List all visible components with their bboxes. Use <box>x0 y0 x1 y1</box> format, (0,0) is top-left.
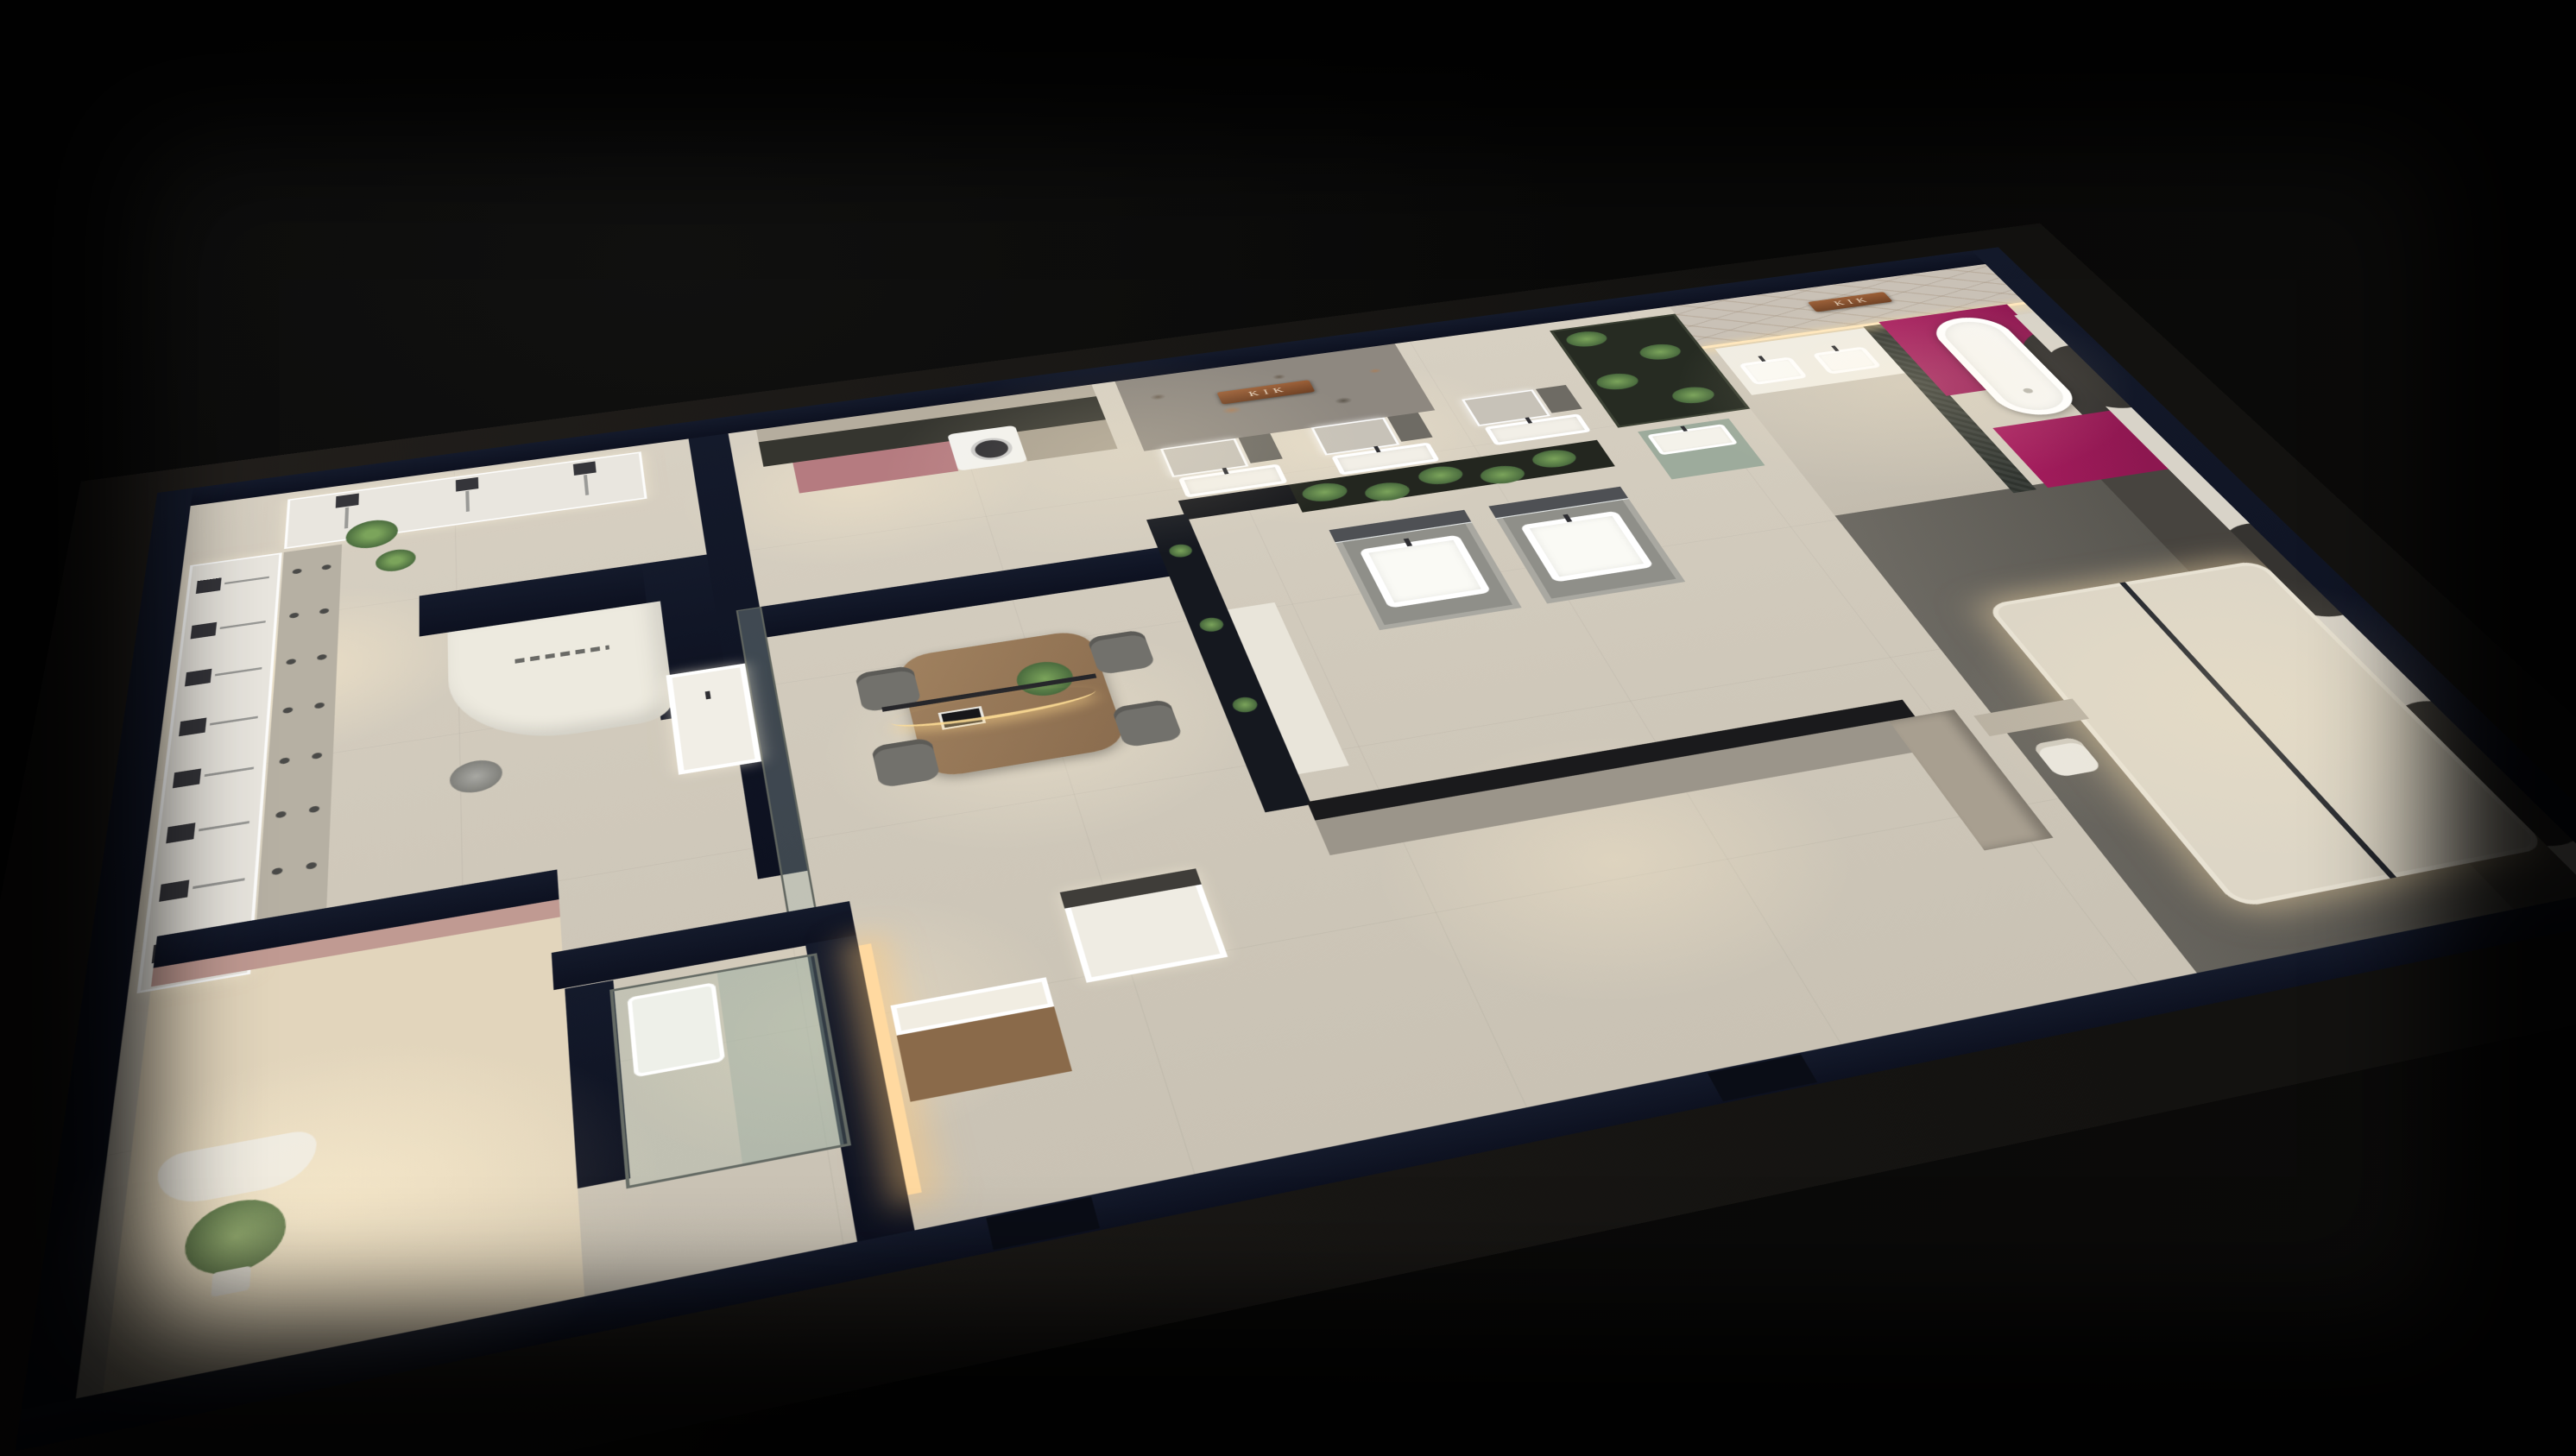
shelf-plant <box>1167 543 1195 558</box>
faucet-icon <box>314 702 325 709</box>
grass-plant <box>1528 447 1581 470</box>
shower-column <box>167 696 271 752</box>
shower-rail <box>215 666 262 676</box>
faucet <box>705 690 711 699</box>
counter-fine-print <box>515 645 609 663</box>
grass-plant <box>1298 480 1351 503</box>
shower-tray <box>627 982 725 1078</box>
showroom-render-stage: KIK K <box>0 0 2576 1456</box>
faucet-icon <box>272 867 283 875</box>
shower-rail <box>584 474 589 495</box>
shower-rail <box>465 490 470 511</box>
shower-rail <box>220 621 266 629</box>
shower-head-icon <box>191 621 218 639</box>
faucet-pair <box>272 700 336 715</box>
shower-column <box>428 473 508 520</box>
basin <box>1739 356 1809 385</box>
shower-column <box>180 603 279 653</box>
shower-head-icon <box>336 493 359 507</box>
basin-top <box>1647 424 1739 455</box>
island-basin <box>1519 510 1654 582</box>
faucet-icon <box>319 608 329 614</box>
grass-plant <box>1414 463 1467 486</box>
faucet-pair <box>282 563 341 576</box>
shower-column <box>185 559 281 607</box>
shower-column <box>154 799 264 860</box>
showroom-floorplan: KIK K <box>16 247 2576 1451</box>
shower-head-icon <box>456 476 478 491</box>
faucet-icon <box>312 752 322 760</box>
shelf-plant <box>1197 615 1226 633</box>
shower-head-icon <box>179 717 206 736</box>
faucet-pair <box>275 652 338 666</box>
faucet-icon <box>309 805 319 813</box>
shower-rail <box>224 576 269 584</box>
grass-plant <box>1668 384 1720 405</box>
faucet-icon <box>293 568 302 574</box>
shower-head-icon <box>185 668 212 686</box>
shelf-plant <box>1230 695 1260 713</box>
faucet-icon <box>322 564 331 570</box>
grass-plant <box>1562 329 1611 348</box>
shower-column <box>146 855 259 919</box>
faucet-icon <box>317 653 326 660</box>
shower-head-icon <box>166 823 195 843</box>
washer-door <box>968 435 1015 462</box>
shower-rail <box>193 878 245 889</box>
shower-column <box>161 747 268 804</box>
faucet-icon <box>286 658 296 665</box>
shower-rail <box>344 507 349 528</box>
faucet-icon <box>306 861 317 870</box>
shower-column <box>174 648 275 701</box>
shower-rail <box>205 766 254 777</box>
faucet-pair <box>268 750 333 766</box>
faucet-icon <box>289 612 299 618</box>
basin <box>1812 346 1882 374</box>
shower-head-icon <box>573 461 597 475</box>
shower-head-icon <box>159 879 189 901</box>
grass-plant <box>1592 371 1643 392</box>
shower-head-icon <box>196 577 222 594</box>
faucet-pair <box>260 860 329 878</box>
shower-rail <box>199 821 249 831</box>
shower-rail <box>210 715 258 725</box>
corridor-vanity <box>666 663 762 774</box>
shower-column <box>546 457 626 503</box>
island-basin <box>1359 534 1492 608</box>
faucet-icon <box>279 757 289 765</box>
faucet-pair <box>264 804 331 820</box>
grass-plant <box>1635 342 1685 362</box>
faucet-icon <box>275 810 287 818</box>
faucet-pair <box>279 606 339 620</box>
shower-head-icon <box>173 768 201 788</box>
faucet-icon <box>282 706 293 713</box>
